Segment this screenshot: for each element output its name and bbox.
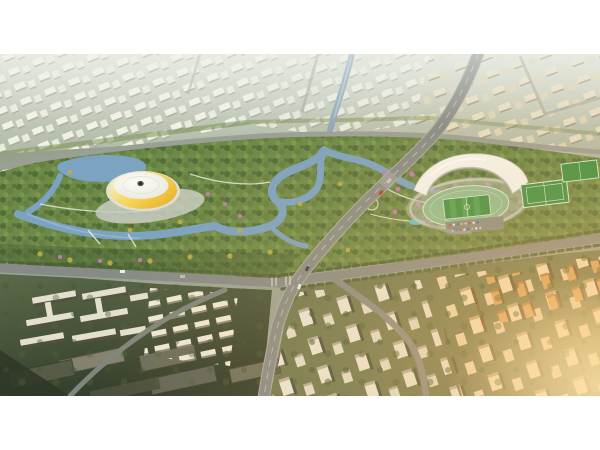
sun-glare-core (300, 174, 600, 396)
aerial-render-photo (0, 54, 600, 396)
aerial-render-svg (0, 54, 600, 396)
letterboxed-page (0, 0, 600, 450)
